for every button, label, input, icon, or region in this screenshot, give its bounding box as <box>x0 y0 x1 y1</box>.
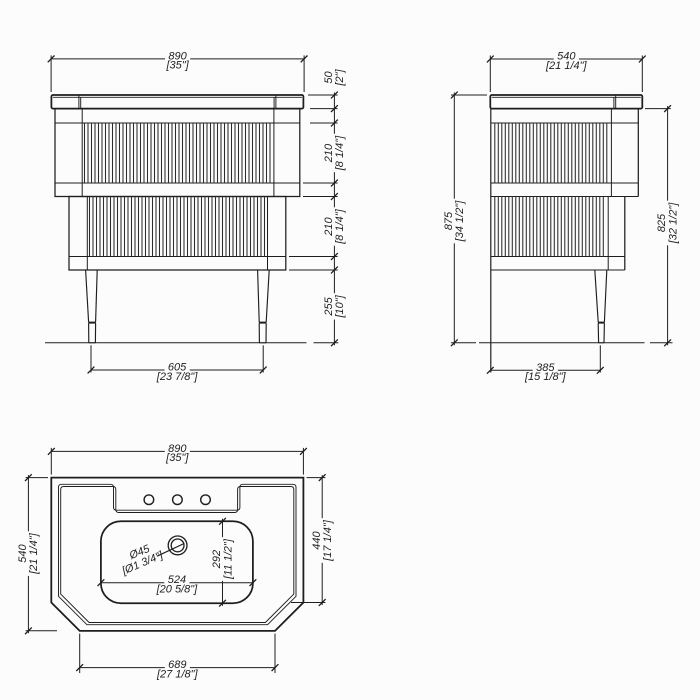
svg-text:[32 1/2"]: [32 1/2"] <box>667 202 679 245</box>
svg-text:210: 210 <box>323 216 335 236</box>
svg-text:[2"]: [2"] <box>334 68 346 86</box>
svg-text:875: 875 <box>443 211 455 230</box>
svg-text:[27 1/8"]: [27 1/8"] <box>156 668 199 680</box>
svg-text:[21 1/4"]: [21 1/4"] <box>545 60 588 72</box>
svg-text:[35"]: [35"] <box>165 60 189 72</box>
svg-text:50: 50 <box>323 71 335 84</box>
svg-text:[8 1/4"]: [8 1/4"] <box>334 135 346 171</box>
svg-text:[35"]: [35"] <box>165 452 189 464</box>
svg-text:292: 292 <box>211 550 223 569</box>
svg-text:[15 1/8"]: [15 1/8"] <box>524 371 567 383</box>
svg-text:[10"]: [10"] <box>334 294 346 318</box>
svg-text:[8 1/4"]: [8 1/4"] <box>334 208 346 244</box>
svg-text:540: 540 <box>17 544 29 563</box>
svg-text:[21 1/4"]: [21 1/4"] <box>28 532 40 575</box>
svg-text:[23 7/8"]: [23 7/8"] <box>156 371 199 383</box>
svg-text:[17 1/4"]: [17 1/4"] <box>322 519 334 562</box>
svg-text:255: 255 <box>323 296 335 316</box>
svg-text:210: 210 <box>323 143 335 163</box>
svg-text:[11 1/2"]: [11 1/2"] <box>222 538 234 580</box>
svg-text:440: 440 <box>311 530 323 549</box>
svg-text:[34 1/2"]: [34 1/2"] <box>454 200 466 243</box>
svg-text:825: 825 <box>656 213 668 232</box>
svg-text:[20 5/8"]: [20 5/8"] <box>156 584 199 596</box>
